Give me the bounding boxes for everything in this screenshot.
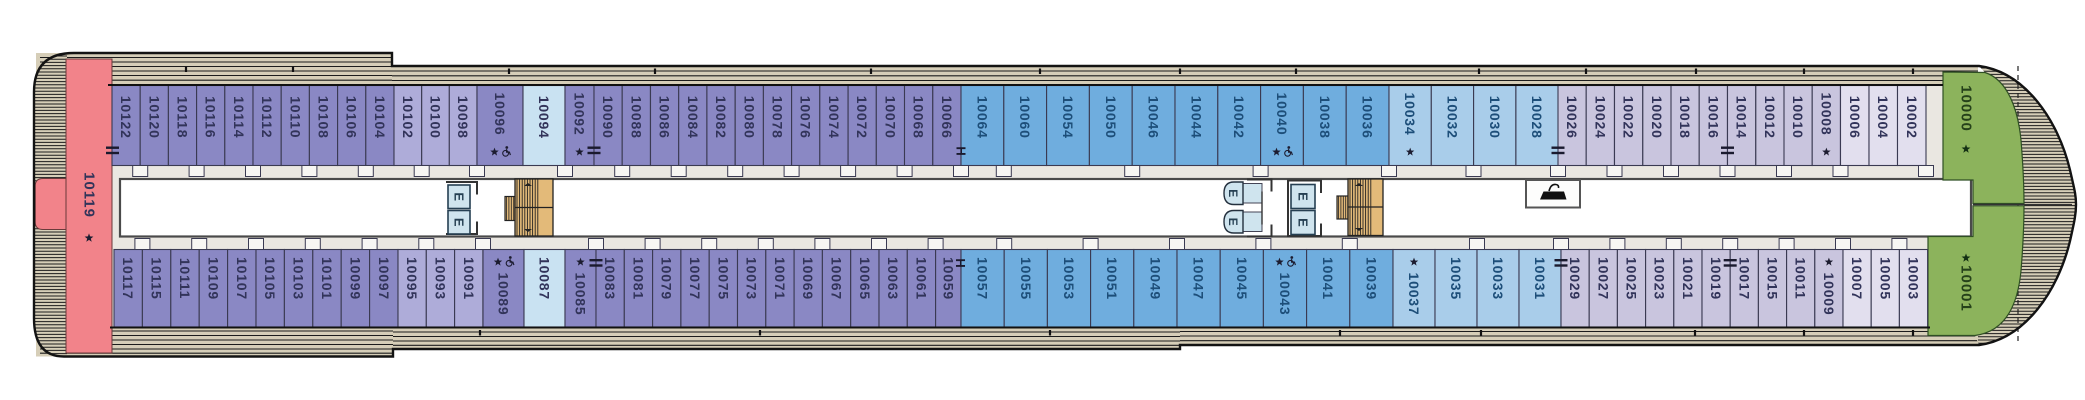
svg-text:10010: 10010 <box>1790 96 1806 139</box>
svg-text:10072: 10072 <box>854 96 870 139</box>
svg-text:10046: 10046 <box>1146 96 1162 139</box>
svg-text:10088: 10088 <box>628 96 644 139</box>
svg-text:10093: 10093 <box>432 257 448 300</box>
svg-text:10077: 10077 <box>687 257 703 300</box>
svg-text:10033: 10033 <box>1490 257 1506 300</box>
svg-text:10015: 10015 <box>1765 257 1781 300</box>
svg-text:10080: 10080 <box>741 96 757 139</box>
svg-text:10018: 10018 <box>1677 96 1693 139</box>
svg-text:10099: 10099 <box>347 257 363 300</box>
svg-text:10105: 10105 <box>262 257 278 300</box>
svg-text:10051: 10051 <box>1104 257 1120 300</box>
svg-text:10067: 10067 <box>829 257 845 300</box>
svg-text:10041: 10041 <box>1320 257 1336 300</box>
svg-text:10076: 10076 <box>798 96 814 139</box>
svg-text:10085: 10085 <box>573 273 589 316</box>
svg-text:10049: 10049 <box>1147 257 1163 300</box>
svg-text:10005: 10005 <box>1877 257 1893 300</box>
svg-text:E: E <box>1296 218 1311 227</box>
svg-text:10098: 10098 <box>455 96 471 139</box>
svg-text:10102: 10102 <box>400 96 416 139</box>
svg-text:10092: 10092 <box>572 93 588 136</box>
svg-text:10055: 10055 <box>1018 257 1034 300</box>
svg-text:10047: 10047 <box>1191 257 1207 300</box>
svg-text:10060: 10060 <box>1017 96 1033 139</box>
svg-text:10026: 10026 <box>1564 96 1580 139</box>
svg-text:10014: 10014 <box>1734 96 1750 139</box>
svg-text:10096: 10096 <box>492 93 508 136</box>
svg-text:10115: 10115 <box>149 257 165 299</box>
svg-text:10086: 10086 <box>657 96 673 139</box>
svg-text:10090: 10090 <box>600 96 616 139</box>
svg-text:10103: 10103 <box>291 257 307 300</box>
svg-text:10042: 10042 <box>1231 96 1247 139</box>
svg-text:10045: 10045 <box>1234 257 1250 300</box>
svg-text:10107: 10107 <box>234 257 250 300</box>
svg-text:10006: 10006 <box>1847 96 1863 139</box>
svg-text:10034: 10034 <box>1402 93 1418 136</box>
svg-text:10095: 10095 <box>404 257 420 300</box>
svg-text:10001: 10001 <box>1958 265 1975 312</box>
svg-text:10101: 10101 <box>319 257 335 300</box>
svg-text:10111: 10111 <box>177 258 193 299</box>
svg-text:10108: 10108 <box>316 96 332 139</box>
svg-text:10022: 10022 <box>1621 96 1637 139</box>
svg-text:10081: 10081 <box>630 257 646 300</box>
svg-text:E: E <box>452 218 467 227</box>
svg-text:10069: 10069 <box>800 257 816 300</box>
svg-text:10120: 10120 <box>146 96 162 139</box>
svg-text:10044: 10044 <box>1188 96 1204 139</box>
svg-text:10082: 10082 <box>713 96 729 139</box>
svg-text:10089: 10089 <box>496 273 512 316</box>
svg-text:10061: 10061 <box>913 257 929 300</box>
svg-text:10068: 10068 <box>911 96 927 139</box>
svg-text:10035: 10035 <box>1448 257 1464 300</box>
svg-text:10012: 10012 <box>1762 96 1778 139</box>
svg-text:10016: 10016 <box>1705 96 1721 139</box>
svg-text:H: H <box>953 258 968 267</box>
svg-text:10050: 10050 <box>1103 96 1119 139</box>
svg-text:10043: 10043 <box>1277 273 1293 316</box>
svg-text:10110: 10110 <box>287 96 303 138</box>
svg-text:10094: 10094 <box>536 96 552 139</box>
svg-text:10037: 10037 <box>1406 273 1422 316</box>
svg-text:10053: 10053 <box>1061 257 1077 300</box>
svg-text:10039: 10039 <box>1363 257 1379 300</box>
svg-text:10078: 10078 <box>770 96 786 139</box>
svg-text:10004: 10004 <box>1875 96 1891 139</box>
svg-text:10118: 10118 <box>175 96 191 138</box>
svg-text:10117: 10117 <box>120 257 136 299</box>
svg-text:10073: 10073 <box>744 257 760 300</box>
svg-text:10032: 10032 <box>1445 96 1461 139</box>
svg-text:10027: 10027 <box>1595 257 1611 300</box>
svg-text:10017: 10017 <box>1736 257 1752 300</box>
svg-text:10112: 10112 <box>259 96 275 138</box>
svg-text:10000: 10000 <box>1958 85 1975 132</box>
svg-text:10024: 10024 <box>1592 96 1608 139</box>
svg-text:10030: 10030 <box>1487 96 1503 139</box>
svg-text:10066: 10066 <box>939 96 955 139</box>
svg-text:10106: 10106 <box>344 96 360 139</box>
svg-text:10097: 10097 <box>376 257 392 300</box>
svg-text:E: E <box>1226 189 1240 197</box>
svg-text:10029: 10029 <box>1567 257 1583 300</box>
svg-text:10075: 10075 <box>715 257 731 300</box>
svg-text:10038: 10038 <box>1317 96 1333 139</box>
svg-text:10063: 10063 <box>885 257 901 300</box>
svg-text:10054: 10054 <box>1060 96 1076 139</box>
svg-text:10065: 10065 <box>857 257 873 300</box>
svg-text:10031: 10031 <box>1532 257 1548 300</box>
svg-text:10071: 10071 <box>772 257 788 300</box>
svg-text:10079: 10079 <box>659 257 675 300</box>
svg-text:10003: 10003 <box>1906 257 1922 300</box>
svg-text:10002: 10002 <box>1904 96 1920 139</box>
svg-text:10074: 10074 <box>826 96 842 139</box>
svg-text:10114: 10114 <box>231 96 247 138</box>
svg-text:10040: 10040 <box>1274 93 1290 136</box>
svg-text:10119: 10119 <box>81 172 98 218</box>
svg-text:10023: 10023 <box>1652 257 1668 300</box>
svg-text:10021: 10021 <box>1680 257 1696 300</box>
svg-text:10011: 10011 <box>1793 257 1809 299</box>
svg-text:10070: 10070 <box>882 96 898 139</box>
svg-text:10083: 10083 <box>602 257 618 300</box>
svg-text:10007: 10007 <box>1849 257 1865 300</box>
svg-text:10122: 10122 <box>118 96 134 139</box>
svg-text:10025: 10025 <box>1624 257 1640 300</box>
svg-text:10036: 10036 <box>1360 96 1376 139</box>
svg-text:10116: 10116 <box>203 96 219 138</box>
svg-text:10028: 10028 <box>1529 96 1545 139</box>
svg-text:10020: 10020 <box>1649 96 1665 139</box>
svg-text:10019: 10019 <box>1708 257 1724 300</box>
svg-text:10008: 10008 <box>1818 93 1834 136</box>
svg-text:E: E <box>1226 218 1240 226</box>
svg-text:10100: 10100 <box>428 96 444 139</box>
svg-text:10109: 10109 <box>205 257 221 300</box>
svg-text:10104: 10104 <box>372 96 388 139</box>
svg-text:10084: 10084 <box>685 96 701 139</box>
svg-text:10087: 10087 <box>537 257 553 300</box>
svg-text:E: E <box>1296 192 1311 201</box>
svg-text:10091: 10091 <box>461 257 477 300</box>
svg-text:10057: 10057 <box>975 257 991 300</box>
svg-text:E: E <box>452 192 467 201</box>
svg-text:10064: 10064 <box>974 96 990 139</box>
svg-text:10009: 10009 <box>1821 273 1837 316</box>
svg-text:H: H <box>954 146 969 155</box>
